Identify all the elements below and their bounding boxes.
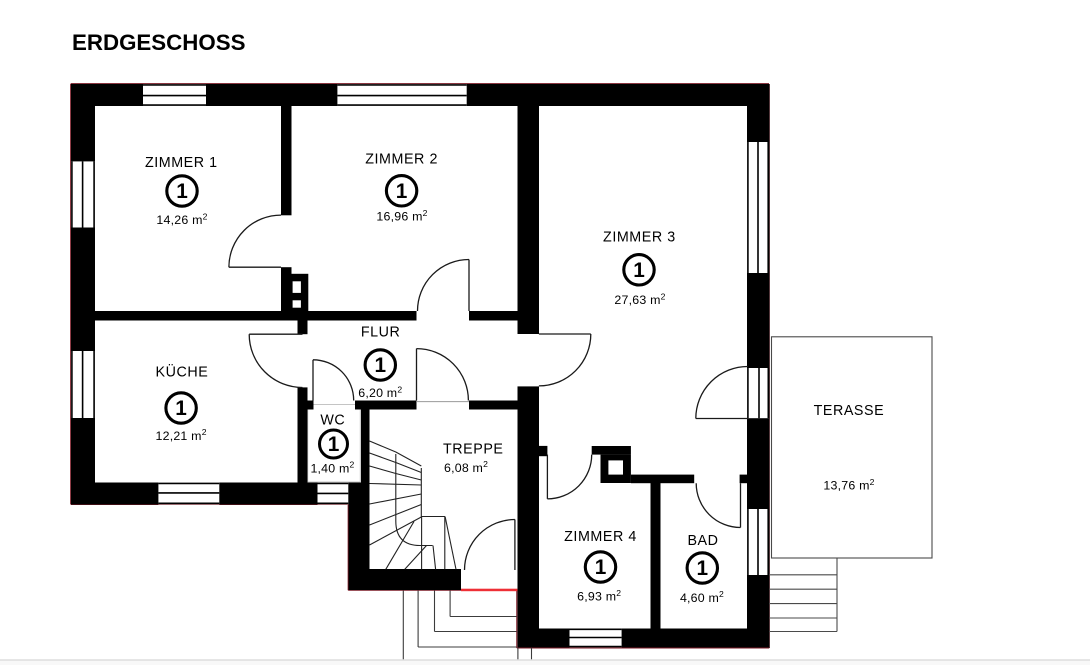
svg-text:ZIMMER 4: ZIMMER 4 <box>564 529 637 545</box>
svg-text:1: 1 <box>176 180 188 203</box>
svg-text:TERASSE: TERASSE <box>814 403 885 419</box>
svg-text:BAD: BAD <box>687 533 718 549</box>
svg-text:KÜCHE: KÜCHE <box>156 363 209 381</box>
svg-text:ZIMMER 3: ZIMMER 3 <box>603 230 676 246</box>
svg-text:1: 1 <box>396 180 408 203</box>
svg-text:1,40 m2: 1,40 m2 <box>310 460 354 476</box>
svg-text:ZIMMER 2: ZIMMER 2 <box>365 152 438 168</box>
svg-text:6,93 m2: 6,93 m2 <box>577 588 621 604</box>
svg-text:ZIMMER 1: ZIMMER 1 <box>145 155 218 171</box>
svg-text:1: 1 <box>633 259 645 282</box>
svg-text:1: 1 <box>595 556 607 579</box>
svg-text:WC: WC <box>320 412 345 428</box>
svg-text:1: 1 <box>175 397 187 420</box>
svg-text:4,60 m2: 4,60 m2 <box>680 589 724 605</box>
svg-text:12,21 m2: 12,21 m2 <box>156 427 207 443</box>
svg-text:16,96 m2: 16,96 m2 <box>376 208 427 224</box>
svg-text:27,63 m2: 27,63 m2 <box>614 291 665 307</box>
svg-text:13,76 m2: 13,76 m2 <box>823 477 874 493</box>
svg-text:ERDGESCHOSS: ERDGESCHOSS <box>72 30 245 55</box>
svg-text:1: 1 <box>697 557 709 580</box>
svg-text:FLUR: FLUR <box>361 324 401 340</box>
svg-text:TREPPE: TREPPE <box>443 441 504 457</box>
svg-text:14,26 m2: 14,26 m2 <box>156 211 207 227</box>
svg-text:1: 1 <box>375 354 387 377</box>
svg-text:1: 1 <box>328 433 340 456</box>
svg-text:6,08 m2: 6,08 m2 <box>444 459 488 475</box>
svg-text:6,20 m2: 6,20 m2 <box>358 384 402 400</box>
